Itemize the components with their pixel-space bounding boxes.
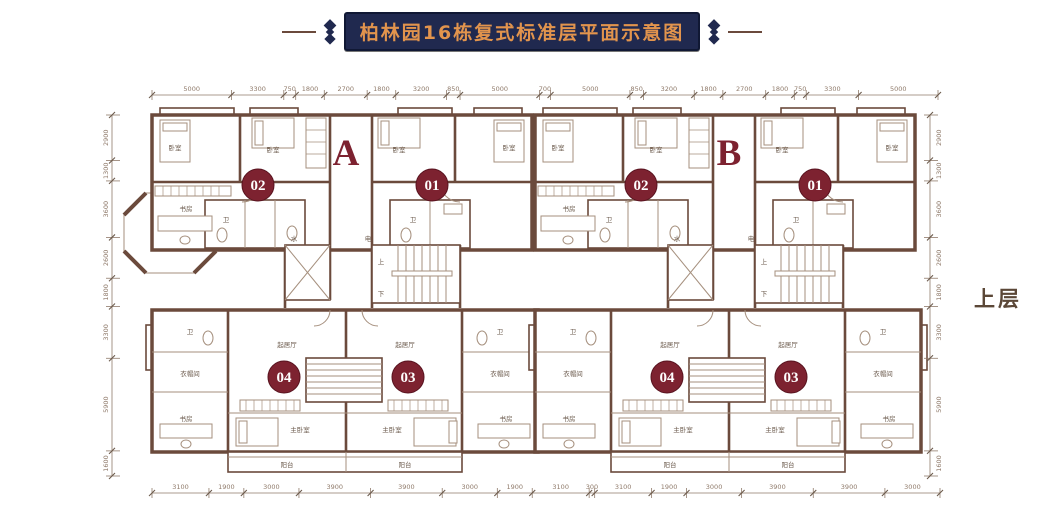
wing-a-lower	[146, 310, 544, 472]
floorplan-page: 柏林园16栋复式标准层平面示意图 上层	[0, 0, 1044, 509]
dim-value: 5900	[102, 396, 110, 413]
dim-value: 2600	[102, 250, 110, 267]
dim-value: 1800	[772, 85, 789, 93]
dim-chain-bottom: 3100190030003900390030001900310030031001…	[149, 483, 943, 498]
dim-value: 2700	[337, 85, 354, 93]
dim-value: 750	[284, 85, 296, 93]
dim-value: 850	[447, 85, 459, 93]
dim-value: 850	[630, 85, 642, 93]
dim-value: 5000	[491, 85, 508, 93]
dim-value: 3200	[661, 85, 678, 93]
dim-value: 5000	[890, 85, 907, 93]
wing-b-lower	[529, 310, 927, 472]
dim-value: 2600	[935, 250, 943, 267]
dim-value: 1600	[102, 455, 110, 472]
section-label-b: B	[717, 133, 742, 174]
dim-value: 1900	[507, 483, 524, 491]
dim-value: 3000	[461, 483, 478, 491]
dim-value: 3000	[706, 483, 723, 491]
dim-value: 3300	[935, 324, 943, 341]
dim-value: 3900	[326, 483, 343, 491]
dim-chain-top: 5000330075018002700180032008505000700500…	[149, 85, 941, 100]
dim-value: 5900	[935, 396, 943, 413]
dim-value: 1800	[373, 85, 390, 93]
dim-value: 3900	[841, 483, 858, 491]
dim-value: 2900	[102, 129, 110, 146]
dim-value: 3600	[935, 201, 943, 218]
dim-value: 2900	[935, 129, 943, 146]
dim-value: 3900	[769, 483, 786, 491]
dim-value: 5000	[582, 85, 599, 93]
dim-value: 3100	[615, 483, 632, 491]
dim-value: 1800	[302, 85, 319, 93]
dim-value: 1900	[661, 483, 678, 491]
dim-value: 3100	[552, 483, 569, 491]
dim-value: 3000	[263, 483, 280, 491]
dim-value: 3900	[398, 483, 415, 491]
dim-chain-right: 29001300360026001800330059001600	[924, 112, 943, 479]
dim-value: 750	[794, 85, 806, 93]
dim-value: 3300	[824, 85, 841, 93]
dim-value: 700	[539, 85, 551, 93]
section-label-a: A	[333, 133, 360, 174]
dim-value: 3100	[172, 483, 189, 491]
dim-value: 2700	[736, 85, 753, 93]
dim-value: 1300	[102, 162, 110, 179]
dim-value: 1300	[935, 162, 943, 179]
dim-value: 1900	[218, 483, 235, 491]
dim-value: 3300	[102, 324, 110, 341]
dim-value: 3600	[102, 201, 110, 218]
dim-value: 300	[586, 483, 598, 491]
dim-value: 1800	[700, 85, 717, 93]
dim-value: 1800	[935, 284, 943, 301]
dim-value: 3300	[249, 85, 266, 93]
dim-value: 1600	[935, 455, 943, 472]
dim-value: 3000	[904, 483, 921, 491]
floorplan-canvas: 卧室 卧室 卧室 卧室 书房 卫 卫 水 电 上 下 02 01	[0, 0, 1044, 509]
dim-value: 1800	[102, 284, 110, 301]
dim-value: 3200	[413, 85, 430, 93]
dim-value: 5000	[183, 85, 200, 93]
dim-chain-left: 29001300360026001800330059001600	[102, 112, 120, 479]
